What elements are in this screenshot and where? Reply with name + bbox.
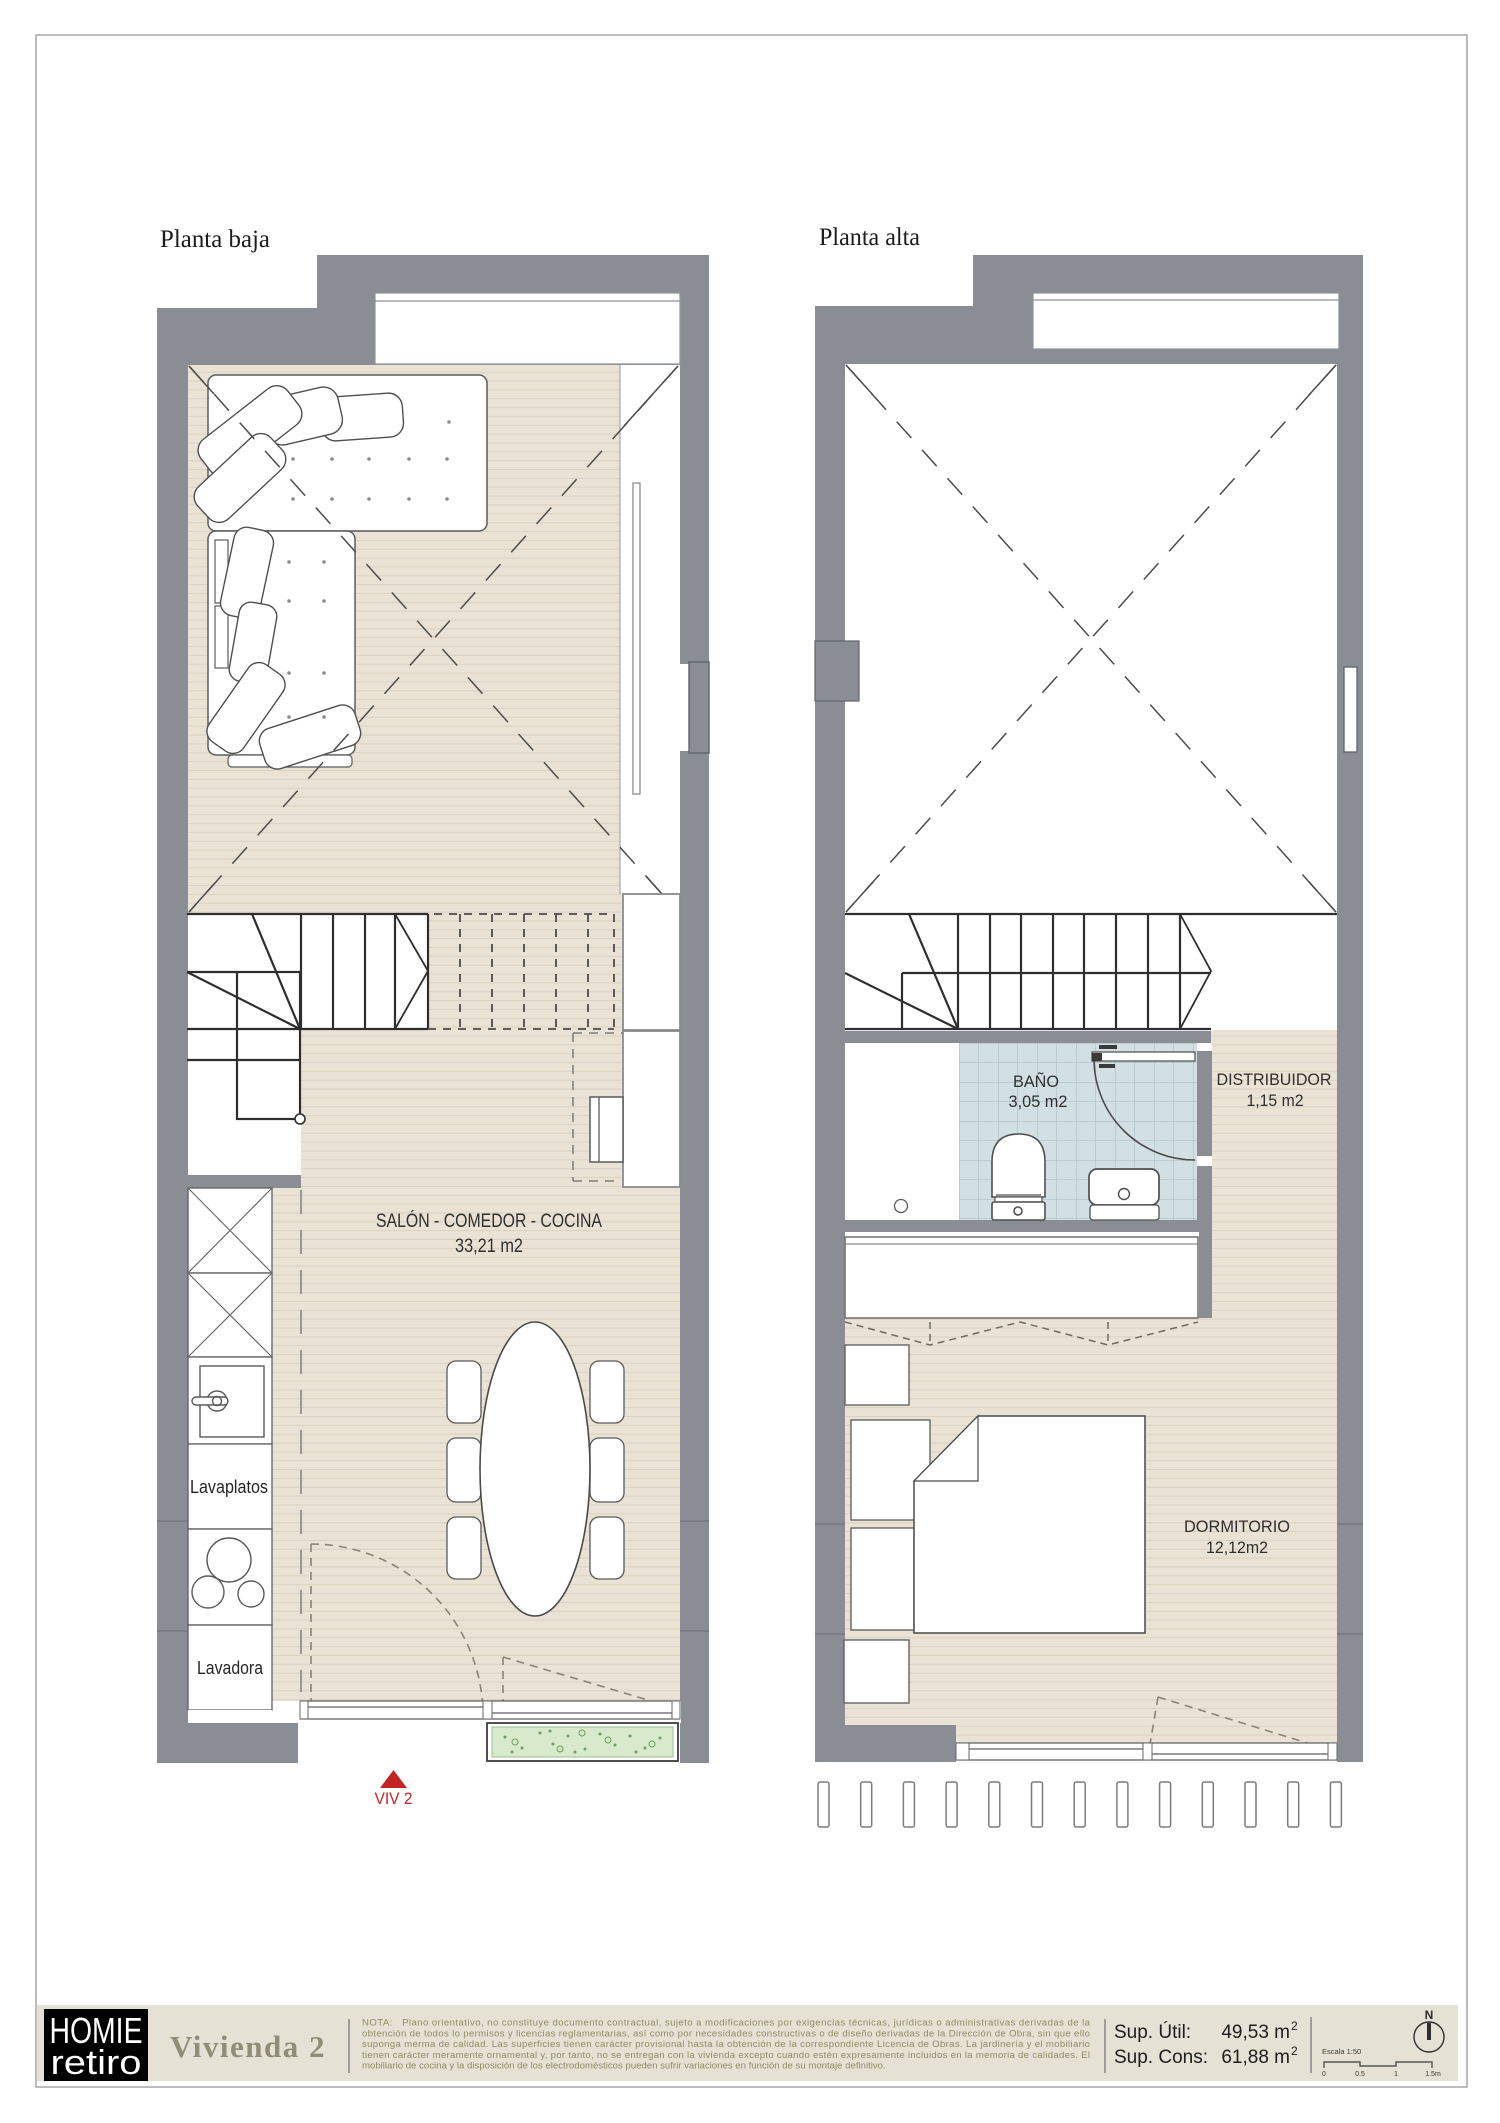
svg-text:49,53 m: 49,53 m	[1221, 2022, 1290, 2043]
svg-text:Escala 1:50: Escala 1:50	[1322, 2047, 1361, 2056]
svg-text:Planta baja: Planta baja	[160, 226, 270, 253]
svg-text:suponga merma de calidad. Las: suponga merma de calidad. Las superficie…	[362, 2039, 1090, 2050]
svg-text:DORMITORIO: DORMITORIO	[1184, 1517, 1290, 1536]
svg-text:retiro: retiro	[51, 2044, 142, 2082]
svg-text:33,21 m2: 33,21 m2	[455, 1236, 523, 1257]
svg-text:VIV 2: VIV 2	[375, 1789, 413, 1808]
svg-text:61,88 m: 61,88 m	[1221, 2047, 1290, 2068]
svg-text:0.5: 0.5	[1355, 2071, 1365, 2078]
svg-text:3,05 m2: 3,05 m2	[1009, 1092, 1068, 1111]
svg-text:1.5m: 1.5m	[1425, 2071, 1441, 2078]
svg-text:0: 0	[1322, 2071, 1326, 2078]
svg-text:BAÑO: BAÑO	[1013, 1072, 1059, 1091]
svg-text:N: N	[1425, 2008, 1434, 2022]
svg-text:tienen carácter meramente orna: tienen carácter meramente ornamental y, …	[362, 2050, 1090, 2061]
svg-text:DISTRIBUIDOR: DISTRIBUIDOR	[1217, 1070, 1332, 1089]
svg-text:1: 1	[1394, 2071, 1398, 2078]
svg-text:12,12m2: 12,12m2	[1206, 1538, 1268, 1557]
svg-text:Vivienda 2: Vivienda 2	[170, 2029, 326, 2064]
svg-text:Lavadora: Lavadora	[197, 1658, 264, 1678]
svg-text:Planta alta: Planta alta	[819, 224, 920, 251]
svg-text:1,15 m2: 1,15 m2	[1247, 1091, 1304, 1110]
svg-text:Lavaplatos: Lavaplatos	[190, 1477, 268, 1497]
svg-text:2: 2	[1291, 2019, 1298, 2033]
svg-text:obtención de todos lo permisos: obtención de todos lo permisos y licenci…	[362, 2028, 1090, 2039]
svg-text:Sup. Útil:: Sup. Útil:	[1114, 2021, 1191, 2043]
svg-text:2: 2	[1291, 2044, 1298, 2058]
svg-text:mobiliario de cocina y la disp: mobiliario de cocina y la disposición de…	[362, 2061, 886, 2072]
svg-text:SALÓN - COMEDOR - COCINA: SALÓN - COMEDOR - COCINA	[376, 1210, 602, 1232]
svg-text:Sup. Cons:: Sup. Cons:	[1114, 2047, 1208, 2068]
svg-text:NOTA: Plano orientativo, no: NOTA: Plano orientativo, no constituye d…	[362, 2018, 1091, 2029]
